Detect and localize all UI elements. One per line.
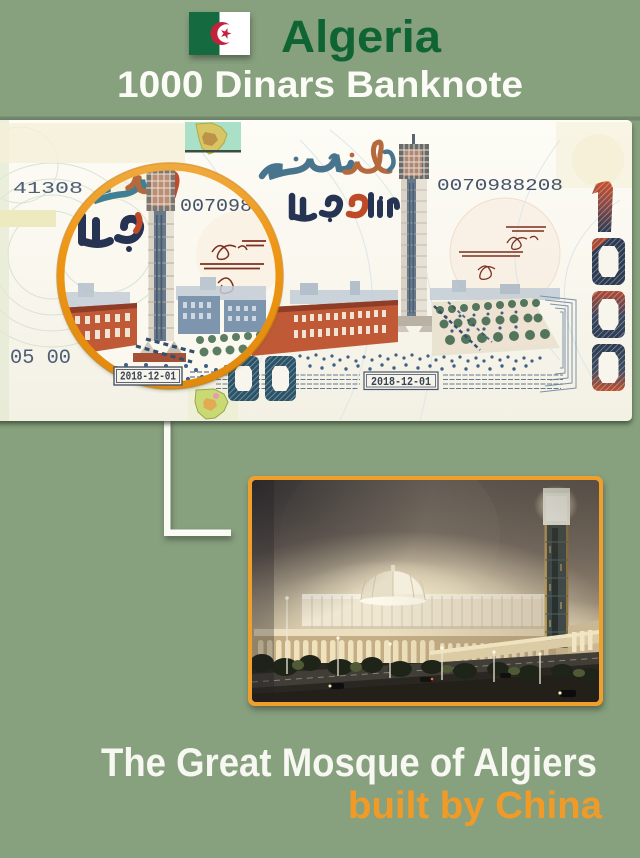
svg-text:0070988208: 0070988208 [437,177,563,196]
svg-text:2018-12-01: 2018-12-01 [120,371,176,384]
svg-text:The Great Mosque of Algiers: The Great Mosque of Algiers [101,741,597,785]
svg-text:Algeria: Algeria [281,11,442,62]
svg-text:built by China: built by China [348,785,603,827]
svg-text:41308: 41308 [13,180,83,199]
svg-text:2018-12-01: 2018-12-01 [371,376,431,389]
svg-text:05 00: 05 00 [10,347,71,370]
svg-text:1000 Dinars Banknote: 1000 Dinars Banknote [117,64,523,105]
